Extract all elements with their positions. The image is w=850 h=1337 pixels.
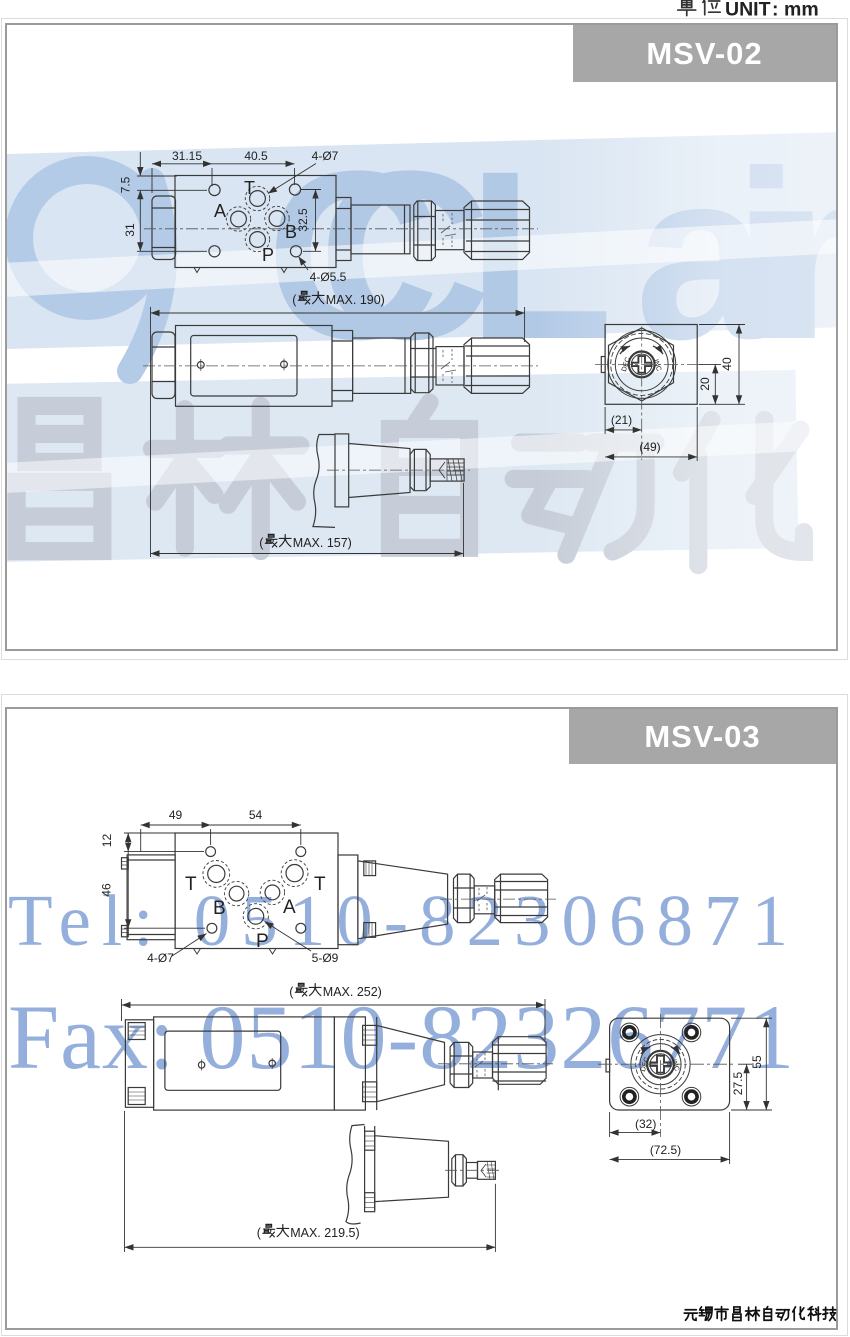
svg-text:(: (	[257, 1226, 262, 1240]
svg-text:40.5: 40.5	[244, 149, 268, 163]
svg-text:32.5: 32.5	[296, 208, 310, 232]
svg-text:5-Ø9: 5-Ø9	[312, 951, 339, 965]
svg-text:46: 46	[100, 883, 114, 897]
svg-text:T: T	[314, 874, 326, 895]
svg-text:(32): (32)	[635, 1117, 656, 1131]
svg-text:4-Ø7: 4-Ø7	[312, 149, 339, 163]
svg-text:40: 40	[720, 357, 734, 371]
svg-text:55: 55	[750, 1055, 764, 1069]
svg-text:(: (	[289, 985, 294, 999]
svg-text:P: P	[262, 245, 274, 265]
svg-text:MAX. 219.5): MAX. 219.5)	[290, 1226, 359, 1240]
svg-text:T: T	[244, 178, 255, 198]
svg-text:(: (	[259, 536, 264, 550]
svg-text:MAX. 252): MAX. 252)	[323, 985, 382, 999]
svg-text:A: A	[214, 201, 226, 221]
svg-text:MAX. 157): MAX. 157)	[293, 536, 352, 550]
svg-text:27.5: 27.5	[731, 1071, 745, 1095]
svg-text:A: A	[283, 897, 296, 918]
svg-text:31: 31	[123, 223, 137, 237]
svg-text:54: 54	[249, 808, 263, 822]
svg-text:MAX. 190): MAX. 190)	[326, 293, 385, 307]
svg-text:(49): (49)	[639, 440, 660, 454]
svg-text:31.15: 31.15	[172, 149, 202, 163]
svg-text:(72.5): (72.5)	[650, 1143, 681, 1157]
svg-text:12: 12	[100, 834, 114, 848]
svg-text:4-Ø5.5: 4-Ø5.5	[310, 270, 347, 284]
svg-text:49: 49	[169, 808, 183, 822]
svg-text:B: B	[285, 222, 297, 242]
svg-text:T: T	[185, 874, 197, 895]
svg-text:20: 20	[698, 377, 712, 391]
svg-text:P: P	[256, 931, 269, 952]
svg-text:(21): (21)	[611, 413, 632, 427]
svg-text:B: B	[213, 898, 226, 919]
svg-text:(: (	[292, 293, 297, 307]
svg-text:4-Ø7: 4-Ø7	[147, 951, 174, 965]
svg-text:7.5: 7.5	[119, 176, 133, 193]
